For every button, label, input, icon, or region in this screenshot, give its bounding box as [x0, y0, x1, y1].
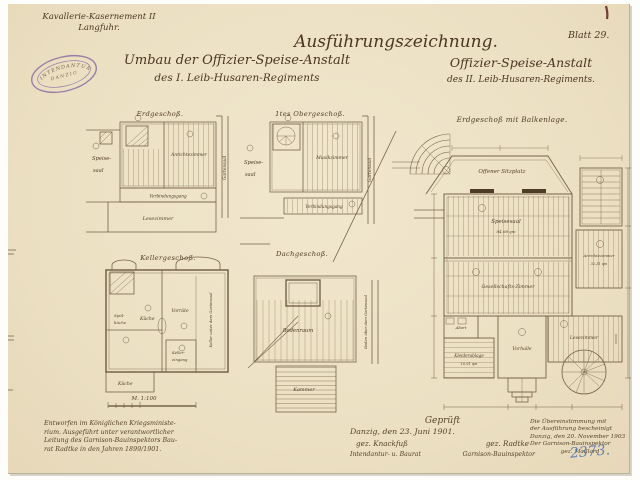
approval-date: Danzig, den 23. Juni 1901.: [350, 427, 535, 436]
approval-signature-1: gez. Knackfuß: [356, 439, 408, 448]
approval-signature-2: gez. Radtke: [486, 439, 529, 448]
approval-block: Geprüft Danzig, den 23. Juni 1901. gez. …: [350, 416, 535, 458]
approval-gep: Geprüft: [350, 416, 535, 426]
approval-title-1: Intendantur- u. Baurat: [350, 451, 421, 458]
scanned-sheet: Kavallerie-Kasernement II Langfuhr. INTE…: [0, 0, 640, 480]
design-note-line1: Entworfen im Königlichen Kriegsministe-: [44, 420, 177, 429]
stray-marks: [8, 4, 629, 473]
edge-ticks: [8, 250, 616, 390]
pen-mark: [606, 6, 607, 19]
certify-line1: Die Übereinstimmung mit: [530, 419, 630, 426]
section-line: [333, 131, 396, 262]
design-note-line3: Leitung des Garnison-Bauinspektors Bau-: [44, 437, 177, 446]
certify-line3: Danzig, den 20. November 1903: [530, 434, 630, 441]
approval-title-2: Garnison-Bauinspektor: [463, 451, 535, 458]
design-note: Entworfen im Königlichen Kriegsministe- …: [44, 420, 177, 454]
drawing-paper: Kavallerie-Kasernement II Langfuhr. INTE…: [8, 4, 630, 474]
design-note-line4: rat Radtke in den Jahren 1899/1901.: [44, 446, 177, 455]
design-note-line2: rium. Ausgeführt unter verantwortlicher: [44, 429, 177, 438]
certify-line2: der Ausführung bescheinigt: [530, 426, 630, 433]
